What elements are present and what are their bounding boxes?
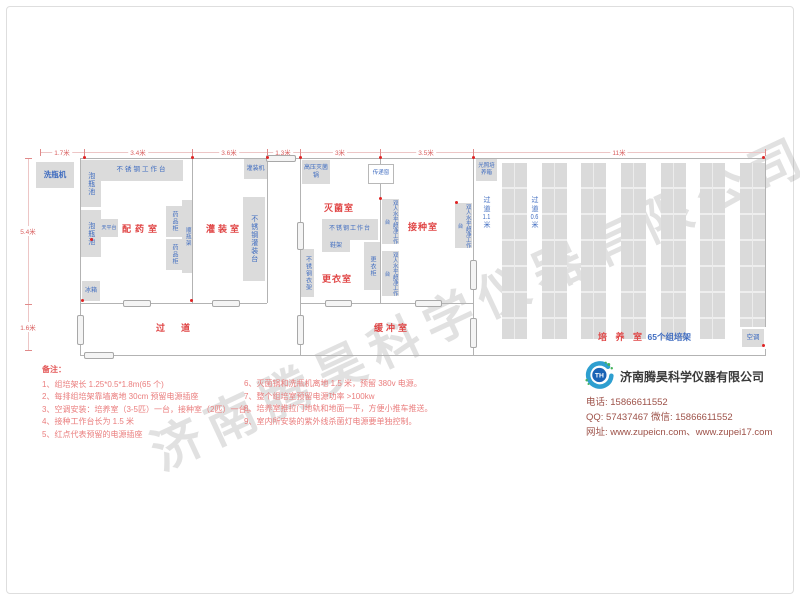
company-logo-icon: TH — [584, 360, 614, 390]
culture-rack — [621, 163, 646, 339]
svg-text:TH: TH — [595, 373, 604, 380]
culture-rack — [581, 163, 606, 339]
company-phone: 电话: 15866611552 — [586, 395, 772, 410]
power-socket-dot — [379, 197, 382, 200]
sliding-door — [77, 315, 84, 345]
wall-outer-top — [80, 158, 766, 159]
culture-rack-row — [502, 163, 765, 339]
shoe-rack: 鞋架 — [322, 240, 350, 252]
sliding-door — [297, 315, 304, 345]
wardrobe: 更衣柜 — [364, 242, 380, 290]
power-socket-dot — [472, 156, 475, 159]
power-socket-dot — [299, 156, 302, 159]
sliding-door — [297, 222, 304, 250]
culture-rack — [542, 163, 567, 339]
note-item: 6、灭菌锅和洗瓶机离地 1.5 米，预留 380v 电源。 — [244, 378, 432, 391]
power-socket-dot — [379, 156, 382, 159]
room-label-corridor: 过道 — [156, 321, 206, 334]
dim-tick — [25, 304, 32, 305]
steel-workbench: 不锈钢工作台 — [322, 219, 378, 240]
note-item: 5、红点代表预留的电源插座 — [42, 429, 254, 442]
power-socket-dot — [190, 299, 193, 302]
light-incubator: 光照培养箱 — [476, 159, 497, 181]
culture-room-name: 培 养 室 — [598, 332, 645, 342]
soaking-pool: 泡瓶池 — [81, 210, 101, 257]
bottle-washer: 洗瓶机 — [36, 162, 74, 188]
power-socket-dot — [83, 156, 86, 159]
pass-through-window: 传递窗 — [368, 164, 394, 184]
dim-tick — [765, 149, 766, 156]
notes-section: 备注： 1、组培架长 1.25*0.5*1.8m(65 个) 2、每排组培架靠墙… — [42, 364, 254, 441]
note-item: 2、每排组培架靠墙离地 30cm 预留电源插座 — [42, 391, 254, 404]
power-socket-dot — [81, 299, 84, 302]
medicine-cabinet: 药品柜 — [166, 239, 182, 270]
power-socket-dot — [191, 156, 194, 159]
note-item: 7、整个组培室预留电源功率 >100kw — [244, 391, 432, 404]
company-name: 济南腾昊科学仪器有限公司 — [620, 368, 764, 385]
culture-rack — [661, 163, 686, 339]
room-label-culture: 培 养 室 65个组培架 — [598, 330, 691, 343]
dim-tick — [40, 149, 41, 156]
floor-plan: 1.7米 3.4米 3.6米 1.3米 3米 3.5米 11米 5.4米 1.6… — [0, 0, 800, 600]
sliding-door — [123, 300, 151, 307]
aisle-label-0-6m: 过道0.6米 — [529, 196, 539, 260]
company-website: 网址: www.zupeicn.com、www.zupei17.com — [586, 425, 772, 440]
sliding-door — [266, 155, 296, 162]
steel-clothes-rack: 不锈钢衣架 — [301, 249, 314, 297]
sliding-door — [470, 318, 477, 348]
power-socket-dot — [762, 156, 765, 159]
laminar-flow-bench: 双人水平超净工作台 — [455, 203, 472, 248]
sliding-door — [212, 300, 240, 307]
sliding-door — [470, 260, 477, 290]
dim-label-top: 3.6米 — [219, 147, 239, 157]
dim-tick — [192, 149, 193, 156]
room-label-sterilizing: 灭菌室 — [324, 201, 354, 214]
balance-table: 天平台 — [100, 219, 118, 237]
sliding-door — [325, 300, 352, 307]
power-socket-dot — [762, 344, 765, 347]
note-item: 8、培养室推拉门地轨和地面一平，方便小推车推送。 — [244, 403, 432, 416]
dim-label-top: 3.5米 — [416, 147, 436, 157]
dim-label-top: 11米 — [610, 147, 627, 157]
dim-tick — [84, 149, 85, 156]
notes-section-right: 6、灭菌锅和洗瓶机离地 1.5 米，预留 380v 电源。 7、整个组培室预留电… — [244, 378, 432, 428]
filling-machine: 灌装机 — [244, 159, 267, 179]
dimension-line-top — [40, 152, 765, 153]
room-label-dispensing: 配药室 — [122, 222, 161, 235]
wall-filling-right — [267, 158, 268, 303]
wall-outer-bottom — [80, 355, 766, 356]
note-item: 9、室内所安装的紫外线杀菌灯电源要单独控制。 — [244, 416, 432, 429]
room-label-changing: 更衣室 — [322, 272, 352, 285]
fridge: 冰箱 — [82, 281, 100, 301]
steel-workbench: 不锈钢工作台 — [101, 160, 183, 181]
dim-tick — [473, 149, 474, 156]
steel-filling-table: 不锈钢灌装台 — [243, 197, 265, 281]
wall-outer-right — [765, 158, 766, 355]
dim-tick — [25, 350, 32, 351]
company-qq-wechat: QQ: 57437467 微信: 15866611552 — [586, 410, 772, 425]
dim-tick — [25, 158, 32, 159]
culture-rack — [740, 163, 765, 339]
dim-tick — [380, 149, 381, 156]
notes-title: 备注： — [42, 364, 254, 377]
note-item: 1、组培架长 1.25*0.5*1.8m(65 个) — [42, 379, 254, 392]
dim-label-top: 3.4米 — [128, 147, 148, 157]
laminar-flow-bench: 双人水平超净工作台 — [382, 199, 399, 244]
autoclave: 高压灭菌锅 — [302, 160, 330, 184]
culture-rack-count: 65个组培架 — [648, 332, 691, 342]
soaking-pool: 泡瓶池 — [81, 160, 101, 207]
aisle-label-1-1m: 过道1.1米 — [481, 196, 491, 260]
power-socket-dot — [455, 201, 458, 204]
sliding-door — [415, 300, 442, 307]
note-item: 4、接种工作台长为 1.5 米 — [42, 416, 254, 429]
power-socket-dot — [90, 238, 93, 241]
dim-label-left: 1.6米 — [18, 322, 38, 332]
dim-label-top: 3米 — [333, 147, 347, 157]
dim-label-left: 5.4米 — [18, 226, 38, 236]
wall-divider-dispensing-filling — [192, 158, 193, 303]
culture-rack — [502, 163, 527, 339]
air-conditioner: 空调 — [742, 329, 764, 347]
room-label-inoculation: 接种室 — [408, 220, 438, 233]
culture-rack — [700, 163, 725, 339]
dim-label-top: 1.7米 — [52, 147, 72, 157]
room-label-filling: 灌装室 — [206, 222, 242, 235]
bottle-arrange-rack: 顺瓶架 — [182, 200, 192, 273]
dim-tick — [300, 149, 301, 156]
company-contact: 电话: 15866611552 QQ: 57437467 微信: 1586661… — [586, 395, 772, 440]
laminar-flow-bench: 双人水平超净工作台 — [382, 251, 399, 296]
blueprint-canvas: 济南腾昊科学仪器有限公司 1.7 — [0, 0, 800, 600]
sliding-door — [84, 352, 114, 359]
power-socket-dot — [266, 156, 269, 159]
room-label-buffer: 缓冲室 — [374, 321, 410, 334]
note-item: 3、空调安装：培养室（3-5匹）一台，接种室（2匹）一台。 — [42, 404, 254, 417]
medicine-cabinet: 药品柜 — [166, 206, 182, 237]
